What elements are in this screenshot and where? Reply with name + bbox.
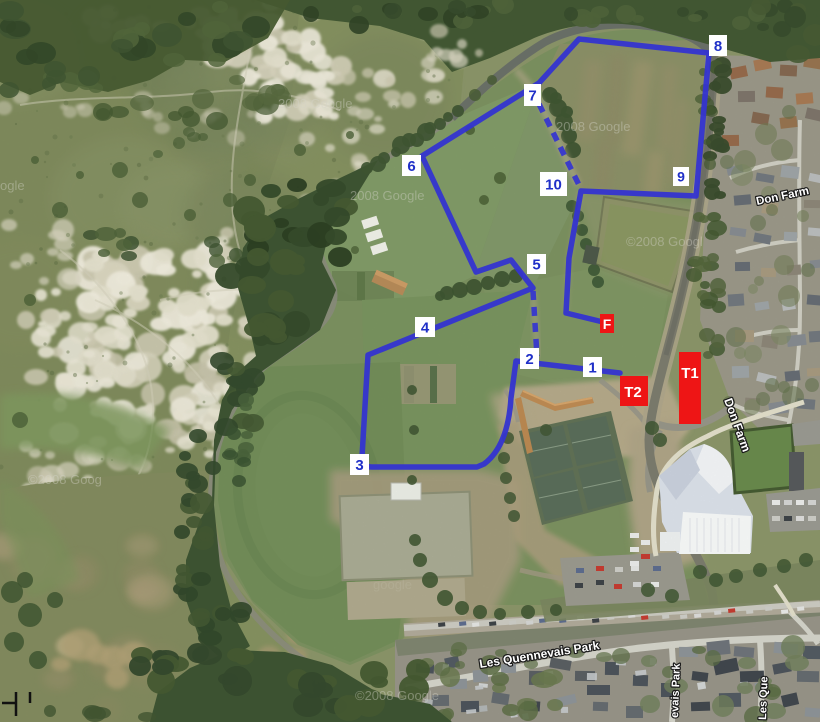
svg-text:Les Que: Les Que [757, 676, 771, 720]
svg-text:7: 7 [528, 87, 536, 104]
svg-text:9: 9 [677, 169, 685, 185]
svg-text:8: 8 [714, 38, 722, 55]
svg-text:3: 3 [355, 457, 363, 474]
svg-text:2: 2 [525, 351, 533, 368]
svg-text:T2: T2 [624, 384, 642, 401]
svg-text:5: 5 [532, 256, 540, 273]
svg-text:T1: T1 [681, 365, 699, 382]
svg-text:4: 4 [421, 319, 430, 336]
svg-text:evais Park: evais Park [669, 662, 683, 718]
svg-text:6: 6 [407, 158, 415, 175]
svg-text:1: 1 [588, 359, 596, 376]
svg-text:F: F [603, 316, 612, 332]
svg-text:10: 10 [545, 176, 562, 193]
